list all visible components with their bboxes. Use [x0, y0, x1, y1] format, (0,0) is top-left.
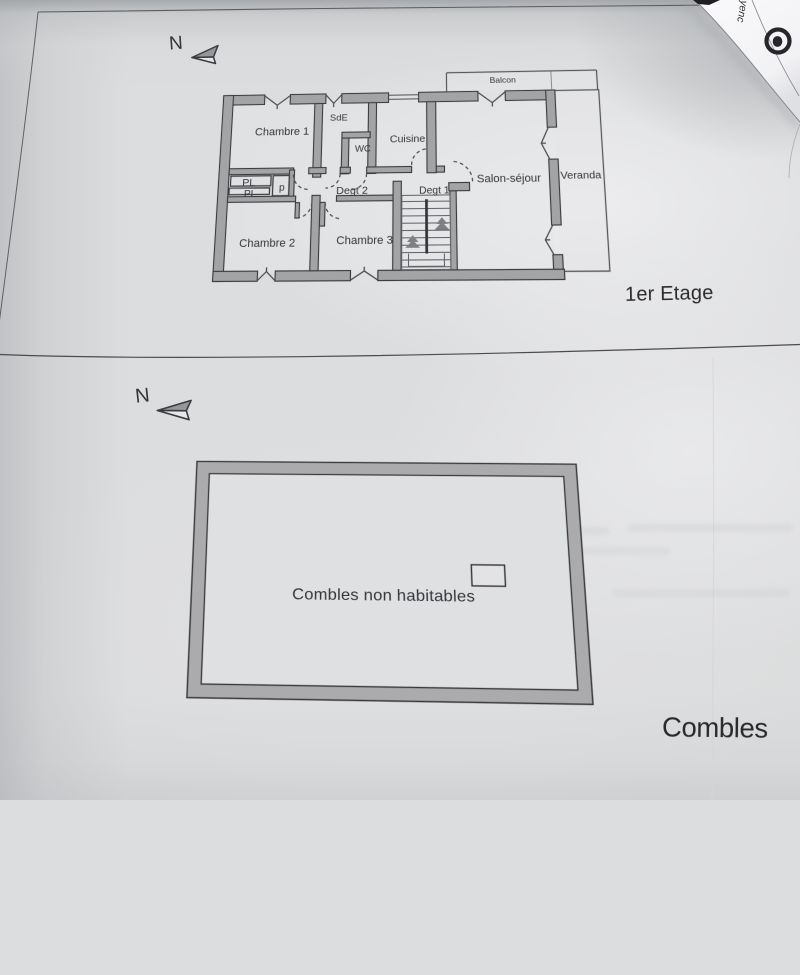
- svg-text:Combles non habitables: Combles non habitables: [292, 585, 475, 605]
